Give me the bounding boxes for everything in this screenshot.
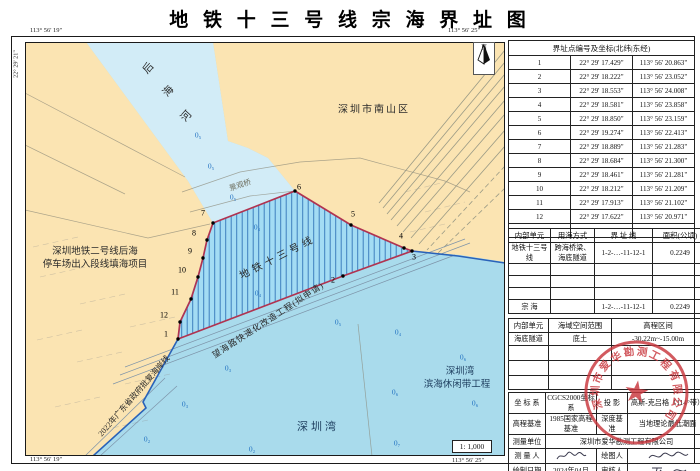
scale-box: 1: 1,000 <box>452 440 492 453</box>
table-row: 测量单位 深圳市爱华勘测工程有限公司 <box>509 435 700 449</box>
table-row: 522° 29' 18.850"113° 56' 23.159" <box>509 112 695 126</box>
table-row-empty <box>509 361 700 376</box>
table-row: 地铁十三号线 跨海桥梁、海底隧道 1-2-…-11-12-1 0.2249 <box>509 243 700 264</box>
point-label-4: 4 <box>399 232 403 241</box>
table-row: 1122° 29' 17.913"113° 56' 21.102" <box>509 196 695 210</box>
map-area: 后 海 河 深圳市南山区 景观桥 深圳地铁二号线后海 停车场出入段线填海项目 地… <box>25 42 505 456</box>
point-label-2: 2 <box>331 276 335 285</box>
table-row: 测 量 人 绘图人 <box>509 449 700 464</box>
point-label-5: 5 <box>351 210 355 219</box>
depth-mark: 0₃ <box>182 400 188 409</box>
point-label-8: 8 <box>192 229 196 238</box>
bay-project-label-line1: 深圳湾 <box>446 363 475 377</box>
point-label-10: 10 <box>178 266 186 275</box>
tick-lat-left-top: 22° 29' 21" <box>13 50 20 78</box>
point-label-6: 6 <box>297 183 301 192</box>
table-row-empty <box>509 276 700 288</box>
depth-mark: 0₂ <box>144 435 150 444</box>
table-row-empty <box>509 376 700 390</box>
table-row: 绘制日期 2024年04月 审核人 <box>509 464 700 471</box>
table-row: 922° 29' 18.461"113° 56' 21.281" <box>509 168 695 182</box>
depth-mark: 0₄ <box>254 223 260 232</box>
scale-text: 1: 1,000 <box>460 442 485 451</box>
depth-mark: 0₆ <box>392 388 398 397</box>
depth-mark: 0₅ <box>335 318 341 327</box>
point-label-11: 11 <box>171 288 179 297</box>
boundary-table-header: 界址点编号及坐标(北纬|东经) <box>509 41 695 56</box>
tick-lon-top-left: 113° 56' 19" <box>30 27 62 34</box>
tick-lon-bottom-left: 113° 56' 19" <box>30 456 62 463</box>
reviewer-signature <box>648 465 688 471</box>
table-row: 122° 29' 17.429"113° 56' 20.863" <box>509 56 695 70</box>
point-label-9: 9 <box>188 247 192 256</box>
bay-label: 深圳湾 <box>297 418 339 434</box>
table-row: 422° 29' 18.581"113° 56' 23.858" <box>509 98 695 112</box>
drafter-signature <box>646 450 690 462</box>
table-row: 322° 29' 18.553"113° 56' 24.008" <box>509 84 695 98</box>
usage-table: 内部单元 用海方式 界 址 线 面积(公顷) 地铁十三号线 跨海桥梁、海底隧道 … <box>508 228 700 314</box>
sheet: 地 铁 十 三 号 线 宗 海 界 址 图 113° 56' 19" 113° … <box>0 0 700 471</box>
table-row: 622° 29' 19.274"113° 56' 22.413" <box>509 126 695 140</box>
table-row: 1222° 29' 17.622"113° 56' 20.971" <box>509 210 695 224</box>
space-header-row: 内部单元 海域空间范围 高程区间 <box>509 319 700 333</box>
depth-mark: 0₅ <box>195 131 201 140</box>
table-row: 1022° 29' 18.212"113° 56' 21.209" <box>509 182 695 196</box>
table-row-empty <box>509 288 700 300</box>
space-table: 内部单元 海域空间范围 高程区间 海底隧道 底土 -30.22m~-15.00m <box>508 318 700 390</box>
depth-mark: 0₂ <box>249 445 255 454</box>
depth-mark: 0₆ <box>472 399 478 408</box>
depth-mark: 0₃ <box>225 364 231 373</box>
point-label-3: 3 <box>412 253 416 262</box>
table-row: 722° 29' 18.889"113° 56' 21.283" <box>509 140 695 154</box>
point-label-12: 12 <box>160 311 168 320</box>
depth-mark: 0₆ <box>460 353 466 362</box>
table-row: 高程基准 1985国家高程基准 深度基准 当地理论最低潮面 <box>509 414 700 435</box>
north-arrow-icon <box>474 43 494 65</box>
table-row: 222° 29' 18.222"113° 56' 23.052" <box>509 70 695 84</box>
depth-mark: 0₄ <box>395 328 401 337</box>
page-title: 地 铁 十 三 号 线 宗 海 界 址 图 <box>0 5 700 32</box>
depth-mark: 0₅ <box>208 162 214 171</box>
point-label-7: 7 <box>201 209 205 218</box>
point-label-1: 1 <box>164 330 168 339</box>
table-row-empty <box>509 264 700 276</box>
table-row: 海底隧道 底土 -30.22m~-15.00m <box>509 333 700 346</box>
table-row: 宗 海 1-2-…-11-12-1 0.2249 <box>509 300 700 314</box>
tick-lon-bottom-right: 113° 56' 25" <box>452 457 484 464</box>
boundary-table: 界址点编号及坐标(北纬|东经) 122° 29' 17.429"113° 56'… <box>508 40 695 238</box>
boundary-header-row: 界址点编号及坐标(北纬|东经) <box>509 41 695 56</box>
depth-mark: 0₅ <box>230 193 236 202</box>
tick-lon-top-right: 113° 56' 25" <box>448 27 480 34</box>
west-project-label-line2: 停车场出入段线填海项目 <box>43 256 148 270</box>
depth-mark: 0₄ <box>255 289 261 298</box>
surveyor-signature <box>554 450 588 462</box>
table-row: 822° 29' 18.684"113° 56' 21.300" <box>509 154 695 168</box>
district-label: 深圳市南山区 <box>338 101 410 116</box>
usage-header-row: 内部单元 用海方式 界 址 线 面积(公顷) <box>509 229 700 243</box>
north-arrow: N <box>473 42 495 75</box>
table-row-empty <box>509 346 700 361</box>
west-project-label-line1: 深圳地铁二号线后海 <box>52 243 138 257</box>
meta-table: 坐 标 系 CGCS2000坐标系 投 影 高斯-克吕格（114°带） 高程基准… <box>508 392 700 471</box>
bay-project-label-line2: 滨海休闲带工程 <box>424 376 491 390</box>
depth-mark: 0₇ <box>394 439 400 448</box>
table-row: 坐 标 系 CGCS2000坐标系 投 影 高斯-克吕格（114°带） <box>509 393 700 414</box>
